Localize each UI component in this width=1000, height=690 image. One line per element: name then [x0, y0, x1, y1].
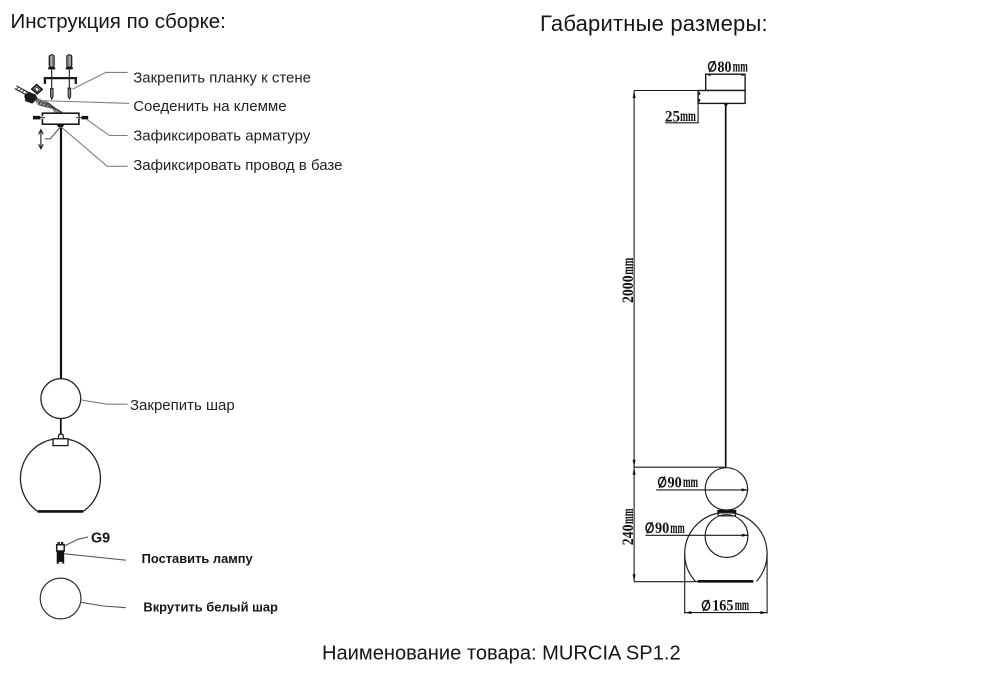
svg-text:90: 90 [668, 474, 682, 491]
svg-text:mm: mm [620, 508, 637, 524]
svg-text:165: 165 [712, 597, 733, 614]
svg-text:80: 80 [718, 59, 732, 76]
svg-text:Габаритные размеры:: Габаритные размеры: [540, 11, 768, 36]
svg-text:Зафиксировать арматуру: Зафиксировать арматуру [133, 127, 311, 144]
svg-text:2000: 2000 [620, 275, 637, 303]
svg-text:mm: mm [733, 59, 748, 76]
svg-text:mm: mm [735, 597, 749, 614]
svg-text:240: 240 [620, 525, 637, 546]
svg-text:mm: mm [620, 258, 637, 275]
svg-text:mm: mm [683, 474, 698, 491]
svg-text:Вкрутить белый шар: Вкрутить белый шар [143, 599, 278, 614]
svg-text:Закрепить планку к стене: Закрепить планку к стене [133, 69, 311, 86]
svg-text:Инструкция по сборке:: Инструкция по сборке: [11, 10, 226, 33]
svg-text:90: 90 [655, 520, 669, 537]
svg-text:Наименование товара: MURCIA SP: Наименование товара: MURCIA SP1.2 [322, 643, 681, 665]
svg-text:Зафиксировать провод в базе: Зафиксировать провод в базе [133, 157, 342, 174]
svg-text:Соеденить на клемме: Соеденить на клемме [133, 98, 286, 115]
svg-text:mm: mm [670, 520, 684, 537]
svg-text:25: 25 [665, 108, 680, 125]
svg-text:Поставить лампу: Поставить лампу [142, 551, 254, 566]
svg-text:G9: G9 [91, 531, 110, 547]
svg-text:mm: mm [680, 108, 696, 125]
svg-text:Закрепить шар: Закрепить шар [130, 397, 235, 414]
